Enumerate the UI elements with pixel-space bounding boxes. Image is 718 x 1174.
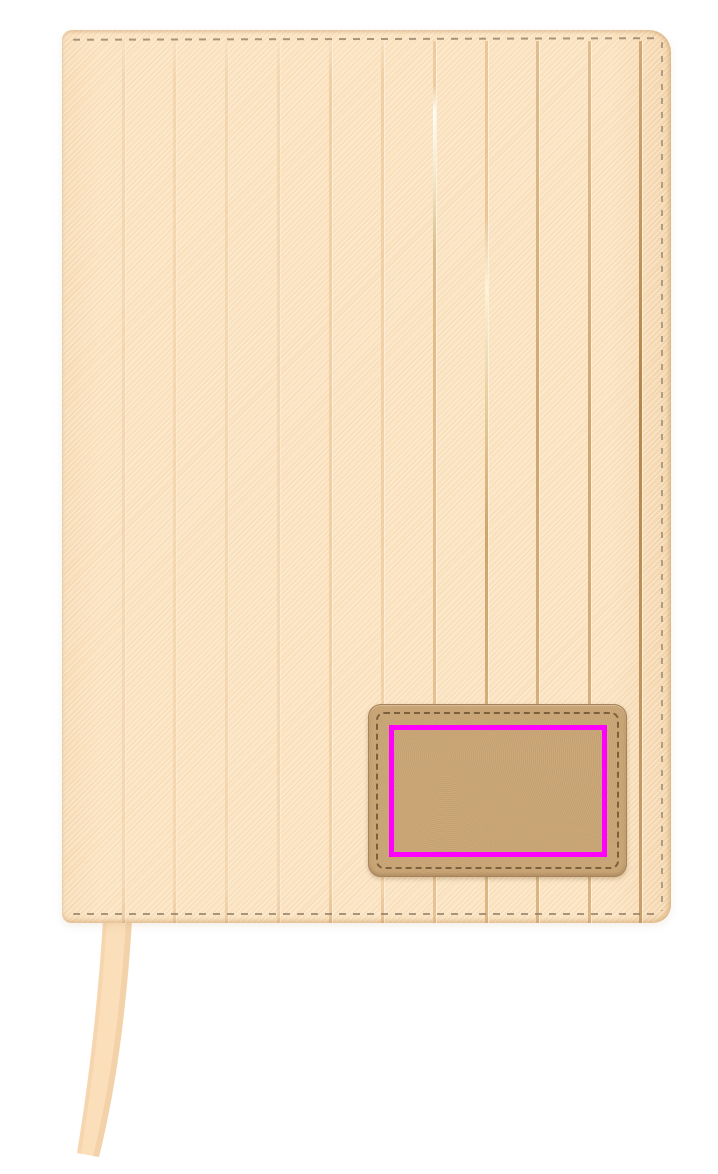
- cover-groove: [225, 41, 228, 923]
- cover-groove: [329, 41, 332, 923]
- notebook-cover: [62, 30, 671, 923]
- cover-groove: [122, 41, 125, 923]
- cover-groove: [173, 41, 176, 923]
- cover-groove: [639, 41, 642, 923]
- print-area-marker: [389, 725, 607, 857]
- ribbon-shape: [77, 920, 132, 1157]
- top-stitching: [73, 37, 658, 41]
- bottom-stitching: [73, 913, 658, 915]
- ribbon-left-shade: [77, 920, 107, 1154]
- cover-groove: [277, 41, 280, 923]
- ribbon-edge-shade: [93, 920, 132, 1157]
- right-stitching: [661, 42, 663, 911]
- product-photo-stage: [0, 0, 718, 1174]
- leather-patch: [368, 704, 627, 877]
